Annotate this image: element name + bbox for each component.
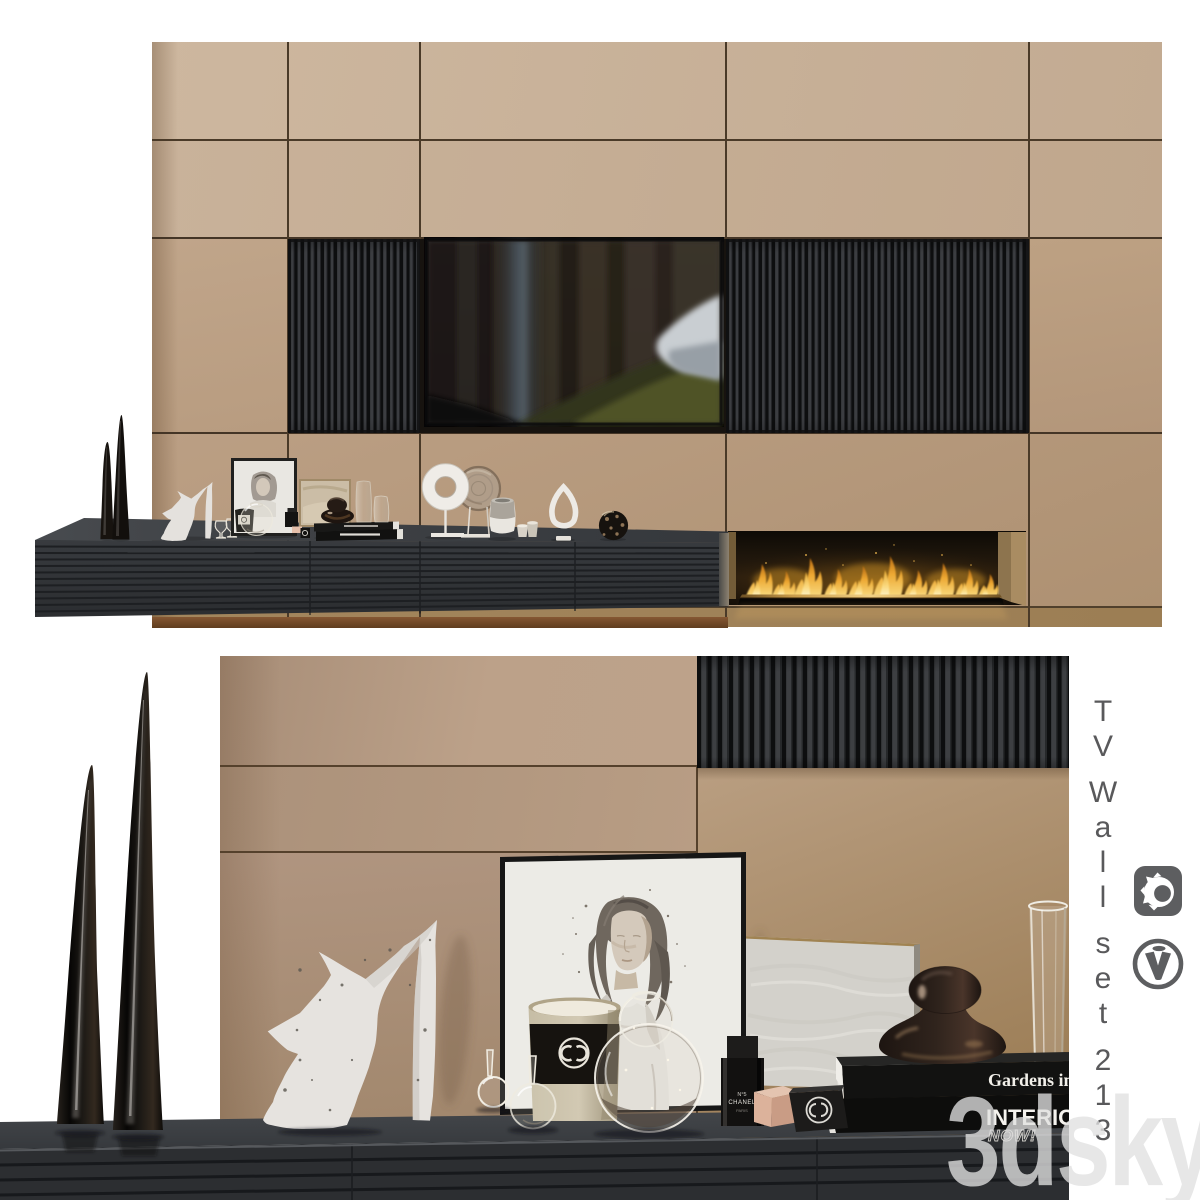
svg-text:PARIS: PARIS: [736, 1108, 748, 1113]
svg-text:CHANEL: CHANEL: [728, 1100, 756, 1106]
svg-text:N°5: N°5: [737, 1092, 746, 1098]
